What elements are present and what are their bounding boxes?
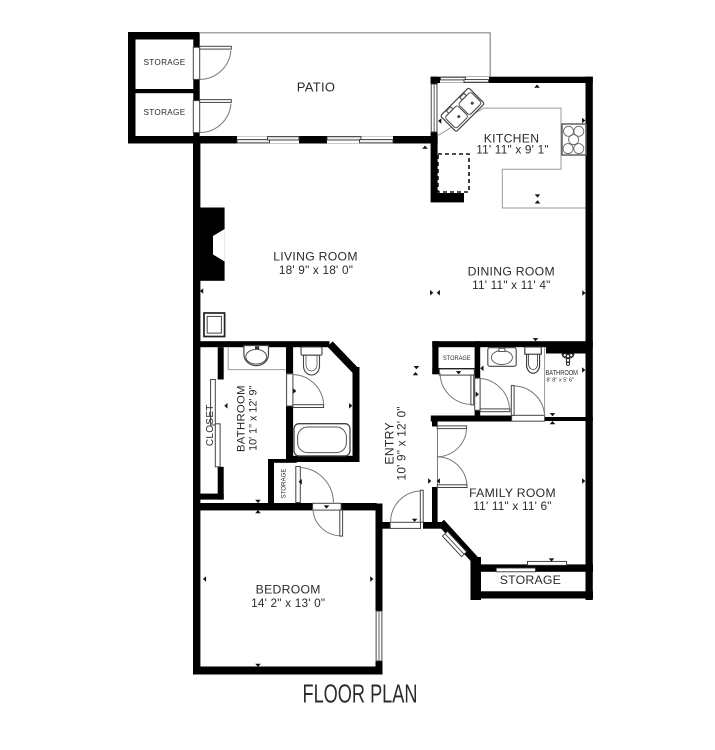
svg-text:FLOOR PLAN: FLOOR PLAN: [303, 681, 418, 709]
svg-text:11' 11" x 11' 6": 11' 11" x 11' 6": [473, 499, 551, 513]
svg-text:18' 9" x 18' 0": 18' 9" x 18' 0": [279, 263, 353, 277]
svg-text:STORAGE: STORAGE: [144, 58, 186, 67]
svg-text:STORAGE: STORAGE: [144, 108, 186, 117]
svg-text:FAMILY ROOM: FAMILY ROOM: [469, 486, 556, 500]
svg-text:STORAGE: STORAGE: [281, 469, 288, 499]
svg-text:10' 1" x 12' 9": 10' 1" x 12' 9": [247, 386, 259, 451]
svg-text:LIVING ROOM: LIVING ROOM: [273, 250, 358, 264]
svg-text:STORAGE: STORAGE: [443, 355, 471, 362]
svg-text:DINING ROOM: DINING ROOM: [468, 265, 555, 279]
svg-text:11' 11" x 11' 4": 11' 11" x 11' 4": [472, 278, 550, 292]
svg-text:PATIO: PATIO: [297, 80, 336, 95]
svg-text:11' 11" x 9' 1": 11' 11" x 9' 1": [476, 142, 549, 156]
svg-text:14' 2" x 13' 0": 14' 2" x 13' 0": [251, 596, 325, 610]
svg-text:CLOSET: CLOSET: [205, 404, 216, 446]
svg-text:8' 8" x 5' 6": 8' 8" x 5' 6": [547, 378, 575, 384]
svg-text:STORAGE: STORAGE: [500, 573, 561, 587]
svg-text:BATHROOM: BATHROOM: [545, 370, 578, 377]
svg-text:10' 9" x 12' 0": 10' 9" x 12' 0": [394, 406, 408, 480]
svg-text:BEDROOM: BEDROOM: [256, 583, 321, 597]
svg-text:BATHROOM: BATHROOM: [235, 385, 247, 452]
